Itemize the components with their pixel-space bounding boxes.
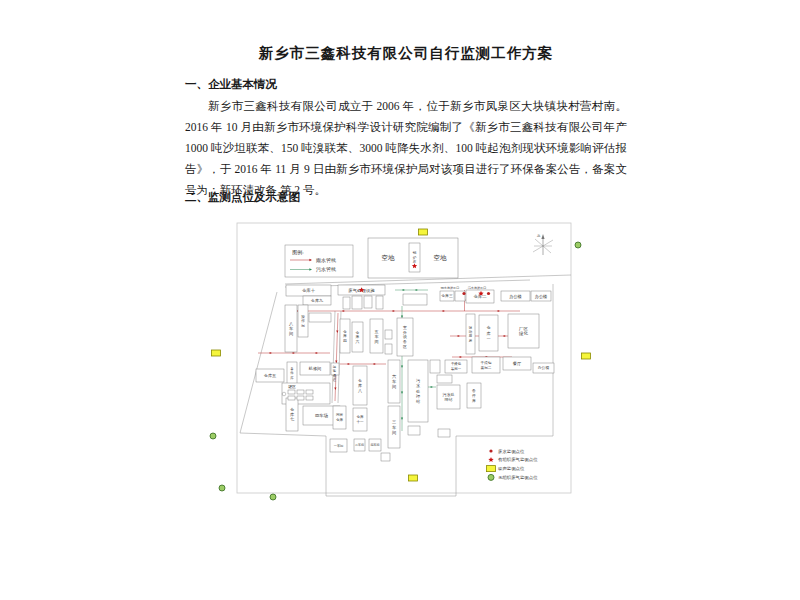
pipe-arrow-icon	[460, 356, 462, 358]
building: 室外设备区	[397, 318, 413, 356]
building-label: 仓库四	[343, 329, 347, 344]
building	[430, 360, 440, 373]
area-label: 空地	[382, 254, 396, 261]
building-rect	[364, 296, 372, 308]
building: 四车间	[369, 439, 381, 451]
building: 锅炉房	[409, 243, 420, 272]
pipe-arrow-icon	[504, 335, 506, 337]
building-rect	[306, 396, 313, 400]
building: 污水处理站	[408, 360, 428, 422]
building-label: 闲置仓库	[336, 413, 344, 422]
building	[288, 396, 295, 400]
building: 厂区绿化	[508, 314, 539, 348]
pipe-arrow-icon	[393, 310, 395, 312]
monitor-legend-label: 噪声监测点位	[498, 466, 525, 471]
building-rect	[381, 453, 390, 461]
building-rect	[437, 375, 452, 383]
pipe-arrow-icon	[401, 418, 403, 420]
building: 闲置仓库	[333, 406, 346, 429]
building: 仓库四	[340, 319, 350, 353]
building-rect	[297, 390, 304, 394]
pipe-arrow-icon	[334, 388, 336, 390]
building: 二车间	[354, 439, 365, 451]
building	[309, 313, 331, 322]
pipe-arrow-icon	[336, 331, 338, 333]
building-label: 厂区绿化	[518, 326, 528, 337]
pipe-legend-label: 污水管线	[316, 266, 336, 273]
fugitive-gas-monitor-icon	[575, 242, 581, 248]
building-label: 室外设备区	[403, 325, 407, 349]
building: 一车间	[330, 439, 347, 452]
wastewater-monitor-icon	[487, 292, 490, 295]
building	[306, 396, 313, 400]
pipe-arrow-icon	[316, 352, 318, 354]
area-label: 污水总排放口	[468, 286, 487, 290]
building: 干燥包装间一	[445, 360, 467, 373]
area-label: 空地	[434, 254, 448, 261]
pipe-arrow-icon	[270, 352, 272, 354]
fugitive-gas-monitor-icon	[219, 485, 225, 491]
building-rect	[408, 426, 420, 435]
building-label: 仓库九	[311, 298, 324, 303]
building: 操作间	[298, 305, 308, 337]
building	[385, 330, 392, 339]
building-rect	[385, 344, 392, 354]
monitor-legend: 废水监测点位有组织废气监测点位噪声监测点位无组织废气监测点位	[498, 449, 538, 480]
building: 仓库六	[352, 322, 363, 352]
pipe-arrow-icon	[401, 392, 403, 394]
building-rect	[376, 296, 383, 309]
building	[297, 396, 304, 400]
section-2-heading: 二、监测点位及示意图	[185, 190, 300, 205]
pipe-legend: 图例:雨水管线污水管线	[285, 245, 353, 277]
monitor-legend-label: 废水监测点位	[498, 449, 525, 454]
building-label: 五车间	[375, 329, 379, 345]
noise-monitor-icon	[409, 475, 418, 481]
building	[385, 344, 392, 354]
site-plan-diagram: 锅炉房仓库十仓库九八车间操作间废气处理设施仓库三仓库二办公楼办公楼仓库四仓库六五…	[200, 218, 600, 508]
building-label: 干燥包装间二	[481, 360, 492, 370]
section-1-paragraph: 新乡市三鑫科技有限公司成立于 2006 年，位于新乡市凤泉区大块镇块村营村南。2…	[185, 96, 627, 201]
building-label: 仓库八	[358, 378, 362, 393]
building: 六车间	[388, 360, 400, 403]
building	[364, 296, 372, 308]
noise-monitor-icon	[487, 466, 496, 472]
building: 五车间	[370, 319, 383, 353]
building: 辅助用房	[466, 314, 475, 354]
building-rect	[343, 297, 350, 309]
building	[438, 429, 450, 437]
building	[437, 375, 452, 383]
building-label: 锅炉房	[412, 250, 417, 264]
building-rect	[297, 396, 304, 400]
pipe-arrow-icon	[401, 316, 403, 318]
building-rect	[438, 429, 450, 437]
building-label: 餐厅	[513, 361, 522, 366]
building-label: 办公楼	[535, 294, 548, 299]
building	[408, 426, 420, 435]
building-label: 办公楼	[509, 294, 522, 299]
building: 仓库十	[286, 285, 331, 296]
noise-monitor-icon	[419, 229, 428, 235]
pipe-arrow-icon	[401, 366, 403, 368]
building: 仓库一	[479, 315, 498, 351]
monitor-legend-label: 无组织废气监测点位	[498, 475, 538, 480]
noise-monitor-icon	[582, 353, 591, 359]
pipe-legend-label: 雨水管线	[316, 257, 336, 264]
page-title: 新乡市三鑫科技有限公司自行监测工作方案	[185, 44, 627, 63]
building: 办公楼	[533, 363, 554, 373]
building-label: 办公楼	[538, 365, 550, 370]
building-label: 仓库三	[441, 293, 453, 298]
building	[343, 297, 350, 309]
building: 备件库	[287, 362, 297, 384]
building-label: 二车间	[355, 443, 364, 447]
building-label: 操作间	[301, 314, 305, 328]
building: 污水处理站	[437, 385, 460, 409]
building-rect	[430, 360, 440, 373]
compass-icon: 北	[533, 234, 553, 255]
compass-label: 北	[537, 234, 541, 238]
building	[288, 390, 295, 394]
pipe-arrow-icon	[498, 310, 500, 312]
building: 仓库十一	[353, 408, 367, 431]
pipe-arrow-icon	[458, 335, 460, 337]
building-label: 干燥包装间一	[451, 361, 462, 371]
building	[376, 296, 383, 309]
pipe-arrow-icon	[348, 363, 350, 365]
pipe-arrow-icon	[431, 386, 433, 388]
building-rect	[288, 396, 295, 400]
building	[381, 453, 390, 461]
building-rect	[352, 296, 362, 309]
building-label: 仓库十	[302, 288, 316, 293]
building: 办公楼	[501, 291, 530, 301]
section-1-heading: 一、企业基本情况	[185, 77, 277, 92]
building: 仓库三	[440, 291, 454, 301]
pipe-arrow-icon	[343, 310, 345, 312]
document-page: 新乡市三鑫科技有限公司自行监测工作方案 一、企业基本情况 新乡市三鑫科技有限公司…	[0, 0, 800, 600]
building: 办公楼	[531, 291, 551, 301]
fugitive-gas-monitor-icon	[270, 494, 276, 500]
building-rect	[385, 330, 392, 339]
building-label: 仓库六	[356, 330, 360, 345]
fugitive-gas-monitor-icon	[488, 474, 494, 480]
fugitive-gas-monitor-icon	[210, 433, 216, 439]
pipe-arrow-icon	[416, 289, 418, 291]
monitor-legend-label: 有组织废气监测点位	[498, 457, 538, 462]
building: 仓库九	[303, 296, 331, 305]
building-label: 四车间	[371, 443, 380, 447]
building: 机修间	[300, 362, 330, 375]
building: 仓库五	[256, 369, 284, 382]
building	[306, 390, 313, 394]
building-label: 仓库五	[264, 373, 277, 378]
building: 三车间	[388, 406, 400, 448]
building: 干燥包装间二	[472, 357, 500, 373]
building-rect	[306, 390, 313, 394]
pipe-arrow-icon	[335, 361, 337, 363]
noise-monitor-icon	[212, 350, 221, 356]
site-boundary-line	[332, 311, 335, 403]
building: 备件库	[467, 383, 481, 408]
building: 仓库八	[353, 366, 367, 405]
pipe-arrow-icon	[443, 310, 445, 312]
building-rect	[309, 313, 331, 322]
north-arrow-icon	[541, 234, 544, 239]
building	[352, 296, 362, 309]
building: 八车间	[285, 305, 297, 352]
area-label: 雨水总排放口	[441, 286, 460, 290]
wastewater-monitor-icon	[489, 449, 492, 452]
building: 仓库七	[286, 398, 298, 431]
wastewater-monitor-icon	[462, 292, 465, 295]
building: 餐厅	[503, 357, 531, 370]
pipe-arrow-icon	[403, 289, 405, 291]
organized-gas-monitor-icon	[488, 457, 493, 462]
building	[297, 390, 304, 394]
building-label: 备件库	[472, 388, 476, 403]
building-label: 一车间	[334, 444, 344, 448]
area-label: 罐区	[288, 384, 296, 389]
building-rect	[288, 390, 295, 394]
building	[403, 294, 427, 305]
building: 仓库二	[466, 290, 494, 303]
pipe-arrow-icon	[293, 352, 295, 354]
site-plan-svg: 锅炉房仓库十仓库九八车间操作间废气处理设施仓库三仓库二办公楼办公楼仓库四仓库六五…	[200, 218, 600, 508]
building-label: 仓库十一	[356, 414, 364, 424]
building-rect	[403, 294, 427, 305]
pipe-arrow-icon	[374, 363, 376, 365]
